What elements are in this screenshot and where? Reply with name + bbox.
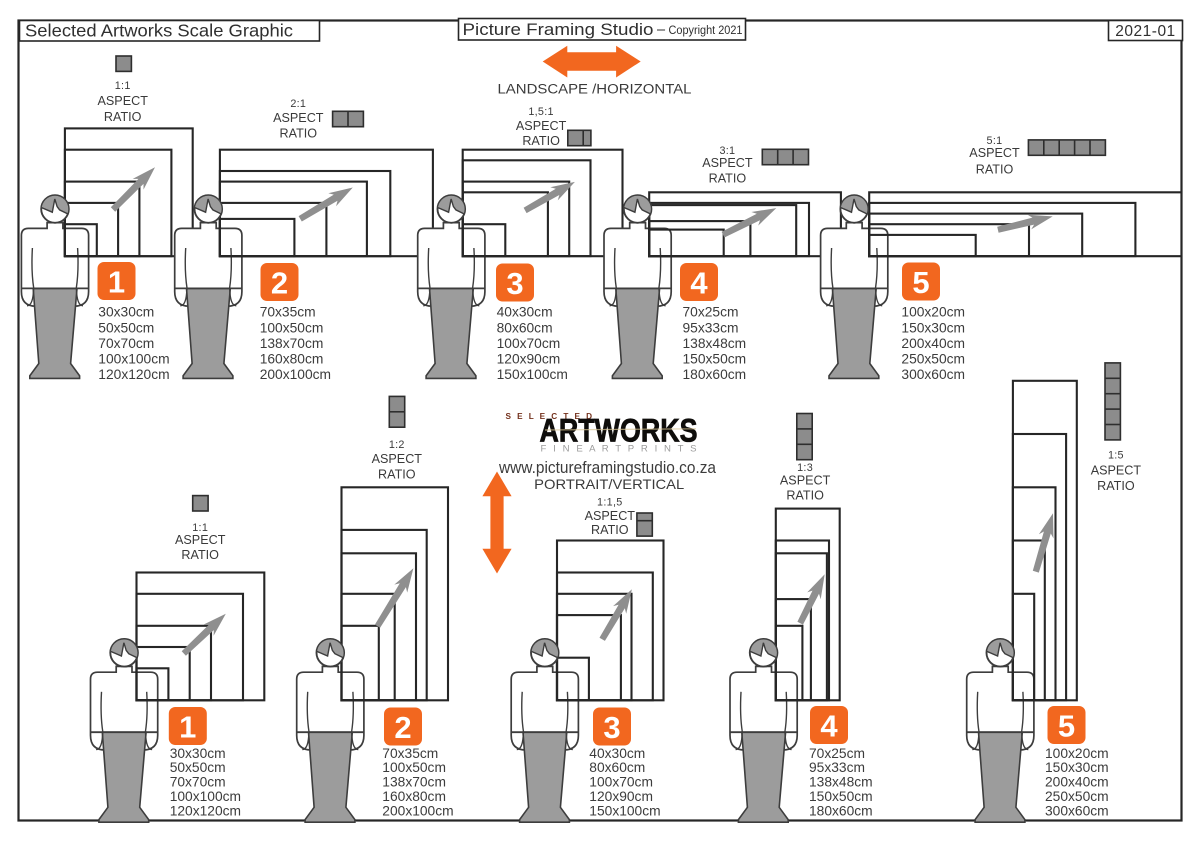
svg-text:70x70cm: 70x70cm [98, 336, 154, 351]
svg-text:2:1: 2:1 [290, 98, 306, 110]
svg-text:300x60cm: 300x60cm [1045, 803, 1109, 818]
svg-text:1,5:1: 1,5:1 [528, 106, 554, 118]
svg-text:150x100cm: 150x100cm [589, 803, 660, 818]
svg-text:200x40cm: 200x40cm [901, 336, 965, 351]
svg-text:Picture Framing Studio: Picture Framing Studio [463, 20, 654, 39]
svg-text:138x70cm: 138x70cm [260, 336, 324, 351]
svg-text:2: 2 [394, 710, 411, 745]
svg-text:95x33cm: 95x33cm [809, 760, 865, 775]
svg-text:RATIO: RATIO [591, 523, 629, 537]
svg-text:1:2: 1:2 [389, 439, 405, 451]
svg-text:RATIO: RATIO [786, 488, 824, 502]
svg-text:RATIO: RATIO [104, 110, 142, 124]
svg-text:Selected Artworks Scale Graphi: Selected Artworks Scale Graphic [25, 21, 293, 41]
svg-text:4: 4 [690, 265, 708, 300]
svg-text:5: 5 [912, 265, 929, 300]
svg-text:120x120cm: 120x120cm [170, 803, 241, 818]
svg-text:180x60cm: 180x60cm [683, 367, 747, 382]
svg-text:150x100cm: 150x100cm [497, 367, 568, 382]
svg-text:LANDSCAPE /HORIZONTAL: LANDSCAPE /HORIZONTAL [498, 82, 693, 97]
svg-text:100x50cm: 100x50cm [382, 760, 446, 775]
svg-text:200x40cm: 200x40cm [1045, 775, 1109, 790]
svg-text:RATIO: RATIO [378, 467, 416, 481]
svg-text:50x50cm: 50x50cm [170, 760, 226, 775]
svg-text:70x35cm: 70x35cm [260, 305, 316, 320]
svg-text:1:3: 1:3 [797, 462, 813, 474]
svg-text:RATIO: RATIO [709, 172, 747, 186]
svg-text:3: 3 [603, 710, 620, 745]
svg-text:100x70cm: 100x70cm [589, 775, 653, 790]
svg-text:120x90cm: 120x90cm [497, 352, 561, 367]
svg-text:3: 3 [506, 266, 523, 301]
svg-text:1:5: 1:5 [1108, 450, 1124, 462]
svg-text:RATIO: RATIO [522, 134, 560, 148]
svg-text:80x60cm: 80x60cm [497, 320, 553, 335]
svg-text:250x50cm: 250x50cm [901, 352, 965, 367]
svg-text:www.pictureframingstudio.co.za: www.pictureframingstudio.co.za [498, 459, 717, 477]
svg-text:40x30cm: 40x30cm [497, 305, 553, 320]
svg-text:95x33cm: 95x33cm [683, 320, 739, 335]
svg-text:RATIO: RATIO [280, 127, 318, 141]
svg-text:80x60cm: 80x60cm [589, 760, 645, 775]
svg-text:ASPECT: ASPECT [98, 94, 149, 108]
svg-text:70x25cm: 70x25cm [809, 746, 865, 761]
svg-text:5: 5 [1058, 708, 1075, 743]
svg-text:2: 2 [271, 265, 288, 300]
svg-text:ASPECT: ASPECT [585, 509, 636, 523]
svg-text:PORTRAIT/VERTICAL: PORTRAIT/VERTICAL [534, 477, 684, 492]
svg-text:300x60cm: 300x60cm [901, 367, 965, 382]
svg-text:30x30cm: 30x30cm [98, 305, 154, 320]
svg-text:RATIO: RATIO [976, 162, 1014, 176]
svg-text:4: 4 [820, 708, 838, 743]
svg-text:ASPECT: ASPECT [780, 474, 831, 488]
svg-text:138x48cm: 138x48cm [683, 336, 747, 351]
svg-text:1:1,5: 1:1,5 [597, 497, 623, 509]
svg-text:1: 1 [179, 709, 196, 744]
svg-text:1:1: 1:1 [115, 80, 131, 92]
svg-text:1: 1 [108, 264, 125, 299]
svg-text:150x30cm: 150x30cm [1045, 760, 1109, 775]
svg-text:180x60cm: 180x60cm [809, 803, 873, 818]
svg-text:70x25cm: 70x25cm [683, 305, 739, 320]
svg-text:Copyright 2021: Copyright 2021 [669, 23, 743, 37]
svg-text:ASPECT: ASPECT [175, 533, 226, 547]
svg-text:ASPECT: ASPECT [1091, 463, 1142, 477]
svg-text:120x120cm: 120x120cm [98, 367, 169, 382]
svg-text:RATIO: RATIO [1097, 479, 1135, 493]
svg-text:ASPECT: ASPECT [702, 156, 753, 170]
svg-text:2021-01: 2021-01 [1115, 23, 1175, 40]
svg-text:ASPECT: ASPECT [516, 119, 567, 133]
svg-text:100x20cm: 100x20cm [1045, 746, 1109, 761]
svg-text:50x50cm: 50x50cm [98, 320, 154, 335]
svg-text:1:1: 1:1 [192, 522, 208, 534]
svg-text:138x70cm: 138x70cm [382, 775, 446, 790]
svg-text:30x30cm: 30x30cm [170, 746, 226, 761]
svg-text:100x50cm: 100x50cm [260, 320, 324, 335]
svg-text:–: – [657, 22, 666, 38]
svg-text:70x70cm: 70x70cm [170, 775, 226, 790]
svg-text:ASPECT: ASPECT [969, 146, 1020, 160]
svg-text:RATIO: RATIO [181, 548, 219, 562]
svg-text:100x70cm: 100x70cm [497, 336, 561, 351]
svg-text:40x30cm: 40x30cm [589, 746, 645, 761]
svg-text:100x100cm: 100x100cm [170, 789, 241, 804]
svg-text:120x90cm: 120x90cm [589, 789, 653, 804]
svg-text:160x80cm: 160x80cm [382, 789, 446, 804]
svg-text:100x100cm: 100x100cm [98, 352, 169, 367]
svg-text:138x48cm: 138x48cm [809, 775, 873, 790]
svg-text:200x100cm: 200x100cm [260, 367, 331, 382]
svg-text:ASPECT: ASPECT [372, 452, 423, 466]
svg-text:150x30cm: 150x30cm [901, 320, 965, 335]
svg-text:250x50cm: 250x50cm [1045, 789, 1109, 804]
svg-text:150x50cm: 150x50cm [809, 789, 873, 804]
svg-text:150x50cm: 150x50cm [683, 352, 747, 367]
svg-text:100x20cm: 100x20cm [901, 305, 965, 320]
svg-text:160x80cm: 160x80cm [260, 352, 324, 367]
svg-text:70x35cm: 70x35cm [382, 746, 438, 761]
svg-text:F I N E A R T P R I N T S: F I N E A R T P R I N T S [541, 443, 697, 454]
svg-text:200x100cm: 200x100cm [382, 803, 453, 818]
svg-text:ASPECT: ASPECT [273, 111, 324, 125]
